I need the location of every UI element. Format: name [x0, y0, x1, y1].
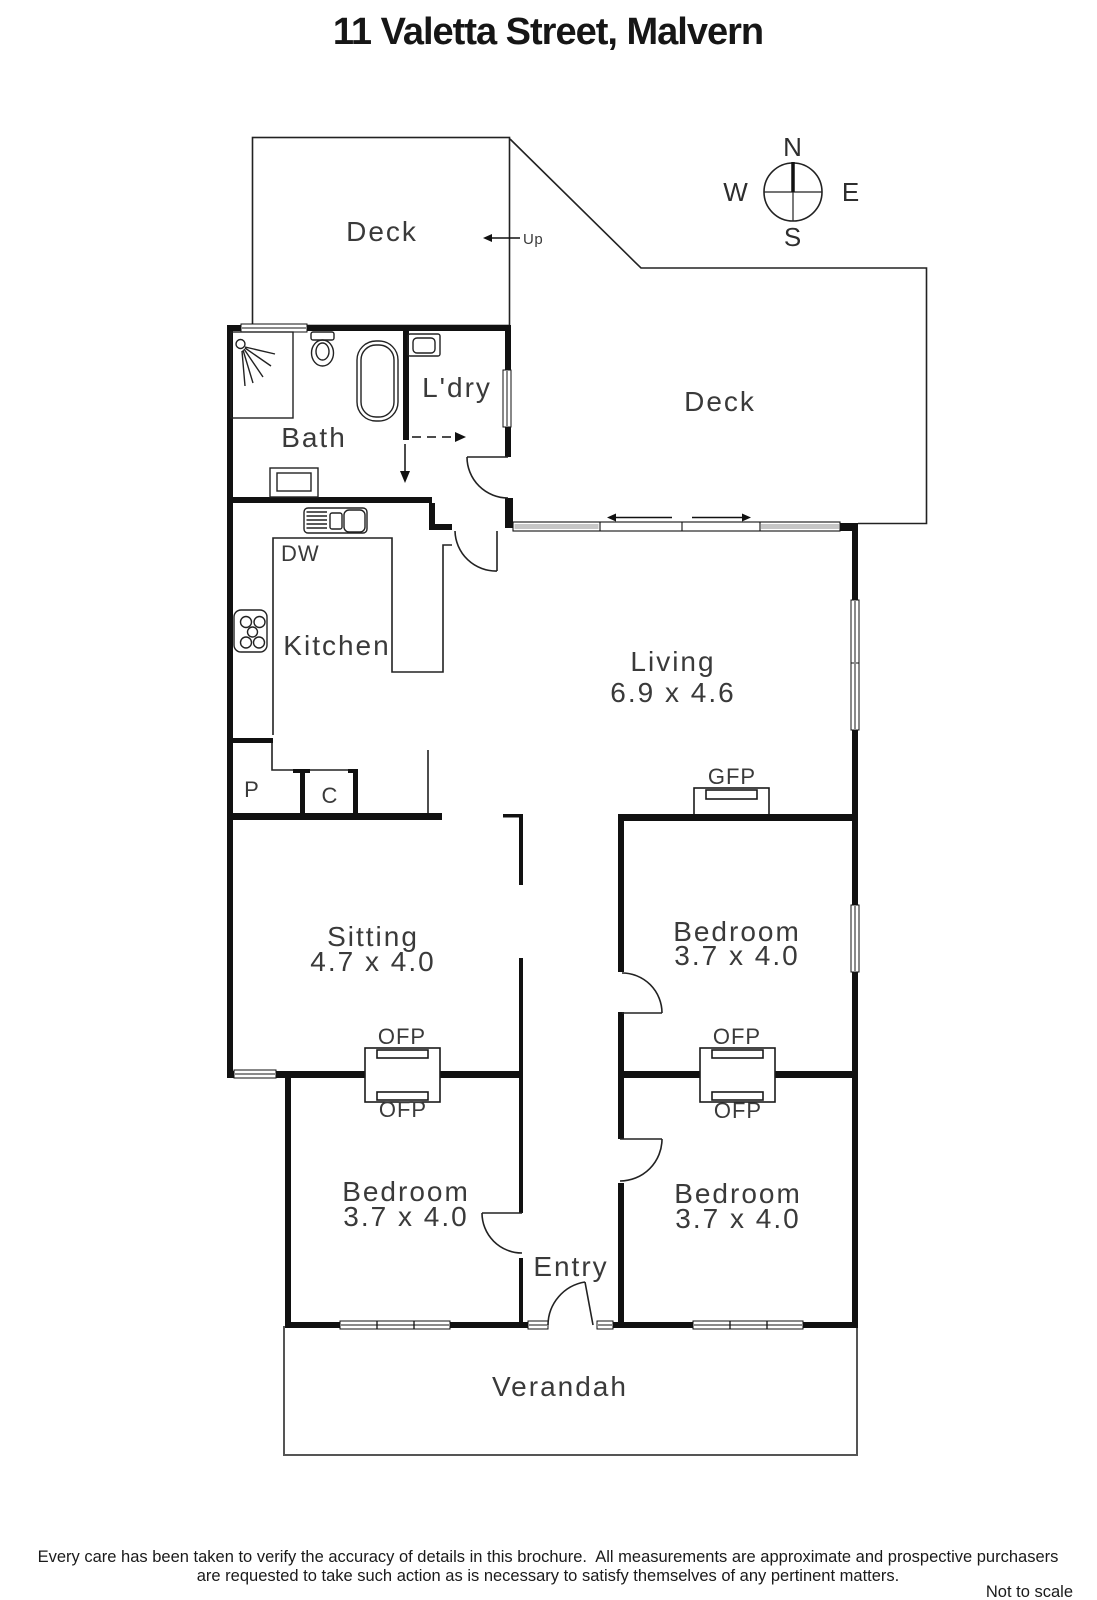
door-front — [548, 1282, 593, 1325]
open-fireplace-sitting-bed2 — [365, 1048, 440, 1102]
wall-hall-west-b — [519, 958, 523, 1213]
slide-arrow-left-head — [607, 514, 616, 522]
bathtub-icon — [357, 341, 398, 421]
floorplan-svg: N W E S 11 Valetta Street, Malvern Deck … — [0, 0, 1097, 1600]
open-fireplace-bed1-bed3 — [700, 1048, 775, 1102]
label-entry: Entry — [533, 1251, 608, 1282]
wall-bed1-west-a — [618, 814, 624, 972]
disclaimer-line2: are requested to take such action as is … — [197, 1567, 900, 1585]
label-verandah: Verandah — [492, 1371, 628, 1402]
label-deck-east: Deck — [684, 386, 756, 417]
doors — [455, 457, 662, 1325]
wall-hall-west-a — [519, 814, 523, 885]
compass-rose: N W E S — [723, 132, 860, 252]
wall-threshold-v — [429, 503, 435, 526]
wall-sitting-north — [227, 813, 442, 820]
compass-s: S — [784, 222, 802, 252]
floorplan-page: N W E S 11 Valetta Street, Malvern Deck … — [0, 0, 1097, 1600]
wall-entry-east-b — [618, 1183, 624, 1322]
flow-arrows — [400, 234, 520, 483]
label-ofp-bed3: OFP — [714, 1098, 762, 1123]
wall-slider-stub — [505, 498, 513, 528]
wall-bath-kitchen — [227, 497, 432, 503]
compass-e: E — [842, 177, 860, 207]
door-laundry-deck — [467, 457, 508, 498]
label-sitting-dims: 4.7 x 4.0 — [310, 946, 435, 977]
compass-w: W — [723, 177, 749, 207]
label-bedroom2-dims: 3.7 x 4.0 — [343, 1201, 468, 1232]
wall-west — [227, 325, 233, 1078]
label-living-dims: 6.9 x 4.6 — [610, 677, 735, 708]
wall-bed1-west-b — [618, 1012, 624, 1073]
label-dishwasher: DW — [281, 541, 320, 566]
label-up: Up — [523, 231, 543, 248]
label-ofp-sitting: OFP — [378, 1024, 426, 1049]
label-cupboard: C — [322, 783, 339, 808]
label-gfp: GFP — [708, 764, 756, 789]
up-arrow-head — [483, 234, 492, 242]
wall-cupboard-r — [353, 771, 358, 813]
wall-pantry — [227, 738, 273, 743]
door-bed1 — [622, 973, 662, 1013]
east-deck-outline — [510, 139, 927, 524]
disclaimer-line1: Every care has been taken to verify the … — [38, 1548, 1059, 1566]
wall-hall-west-c — [519, 1258, 523, 1322]
wall-living-south — [620, 814, 853, 821]
label-living: Living — [630, 646, 715, 677]
wall-bed2-west — [285, 1071, 291, 1328]
label-laundry: L'dry — [422, 372, 492, 403]
label-bedroom1-dims: 3.7 x 4.0 — [674, 940, 799, 971]
door-kitchen-living — [455, 531, 497, 571]
wall-threshold-h — [429, 524, 452, 530]
sliding-door-fixed-left — [515, 524, 599, 529]
toilet-icon — [311, 332, 334, 366]
compass-n: N — [783, 132, 803, 162]
wall-entry-east-a — [618, 1073, 624, 1139]
label-deck-upper: Deck — [346, 216, 418, 247]
door-bed3 — [620, 1139, 662, 1181]
window-midlines — [234, 328, 855, 1325]
cooktop-icon — [234, 610, 267, 652]
wall-cupboard-l — [300, 771, 305, 813]
label-ofp-bed2: OFP — [379, 1097, 427, 1122]
sliding-door — [513, 514, 840, 532]
vanity-icon — [270, 468, 318, 497]
label-pantry: P — [244, 777, 260, 802]
label-kitchen: Kitchen — [283, 630, 390, 661]
label-ofp-bed1: OFP — [713, 1024, 761, 1049]
page-title: 11 Valetta Street, Malvern — [333, 11, 763, 53]
front-door-opening — [548, 1321, 597, 1329]
scale-note: Not to scale — [986, 1583, 1073, 1600]
sink-icon — [304, 508, 367, 533]
bath-right-arrow-head — [455, 432, 466, 442]
washer-icon — [408, 334, 440, 356]
pantry-line — [272, 743, 358, 770]
bath-down-arrow-head — [400, 471, 410, 483]
door-bed2 — [482, 1213, 522, 1253]
gas-fireplace — [694, 788, 769, 815]
label-bedroom3-dims: 3.7 x 4.0 — [675, 1203, 800, 1234]
slide-arrow-right-head — [742, 514, 751, 522]
sliding-door-fixed-right — [761, 524, 839, 529]
label-bath: Bath — [281, 422, 347, 453]
shower-icon — [231, 332, 293, 418]
